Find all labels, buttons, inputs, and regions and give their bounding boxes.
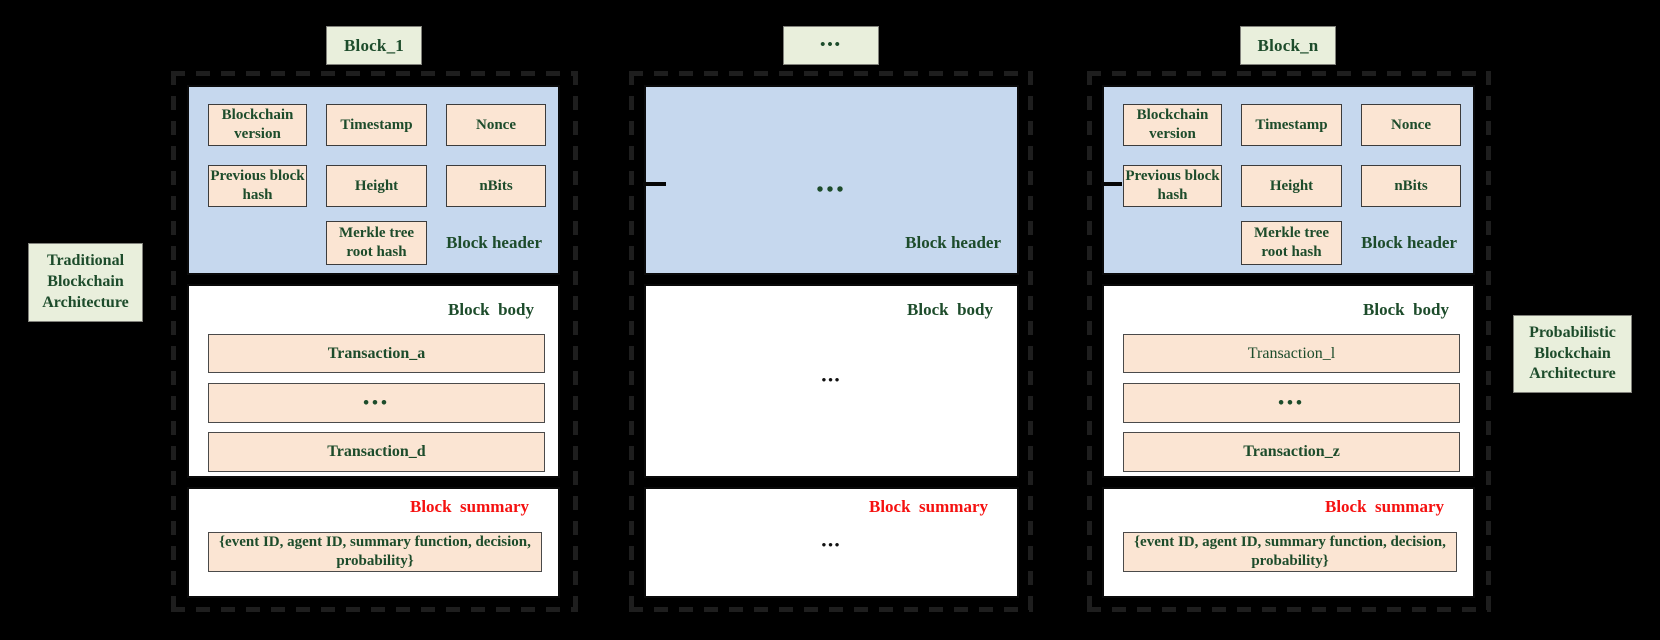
field-merkle-tree-root-hash: Merkle tree root hash (326, 221, 427, 265)
block-ellipsis-body: Block body ••• (644, 284, 1019, 478)
transaction-box: Transaction_z (1123, 432, 1460, 472)
field-timestamp: Timestamp (1241, 104, 1342, 146)
block-n-header: Blockchain version Timestamp Nonce Previ… (1102, 85, 1475, 275)
field-nbits: nBits (446, 165, 546, 207)
block-1-body: Block body Transaction_a ••• Transaction… (187, 284, 560, 478)
block-body-label: Block body (907, 300, 993, 320)
field-merkle-tree-root-hash: Merkle tree root hash (1241, 221, 1342, 265)
block-1-summary: Block summary {event ID, agent ID, summa… (187, 487, 560, 598)
field-nonce: Nonce (1361, 104, 1461, 146)
transactions-ellipsis-box: ••• (208, 383, 545, 423)
field-nbits: nBits (1361, 165, 1461, 207)
block-header-label: Block header (1361, 233, 1457, 253)
transactions-ellipsis-box: ••• (1123, 383, 1460, 423)
block-ellipsis: ••• Block header Block body ••• Block su… (629, 71, 1033, 612)
dashed-border-right (1028, 71, 1033, 612)
diagram-canvas: Block_1 ••• Block_n Traditional Blockcha… (0, 0, 1660, 640)
field-height: Height (326, 165, 427, 207)
field-nonce: Nonce (446, 104, 546, 146)
probabilistic-architecture-label: Probabilistic Blockchain Architecture (1513, 315, 1632, 393)
field-blockchain-version: Blockchain version (1123, 104, 1222, 146)
dashed-border-bottom (629, 607, 1033, 612)
field-previous-block-hash: Previous block hash (208, 165, 307, 207)
transaction-box: Transaction_l (1123, 334, 1460, 373)
dashed-border-top (629, 71, 1033, 76)
inter-block-link-line (643, 182, 666, 186)
dashed-border-bottom (171, 607, 578, 612)
inter-block-link-line (1101, 182, 1122, 186)
block-1-tab: Block_1 (326, 26, 422, 65)
block-header-label: Block header (446, 233, 542, 253)
block-1: Blockchain version Timestamp Nonce Previ… (171, 71, 578, 612)
block-n-tab: Block_n (1240, 26, 1336, 65)
block-summary-label: Block summary (869, 497, 988, 517)
field-previous-block-hash: Previous block hash (1123, 165, 1222, 207)
transaction-box: Transaction_a (208, 334, 545, 373)
body-ellipsis: ••• (646, 372, 1017, 388)
dashed-border-left (629, 71, 634, 612)
transaction-box: Transaction_d (208, 432, 545, 472)
block-summary-label: Block summary (1325, 497, 1444, 517)
block-1-header: Blockchain version Timestamp Nonce Previ… (187, 85, 560, 275)
block-body-label: Block body (448, 300, 534, 320)
block-body-label: Block body (1363, 300, 1449, 320)
field-timestamp: Timestamp (326, 104, 427, 146)
dashed-border-right (1486, 71, 1491, 612)
block-ellipsis-tab: ••• (783, 26, 879, 65)
block-header-label: Block header (905, 233, 1001, 253)
dashed-border-right (573, 71, 578, 612)
block-n-body: Block body Transaction_l ••• Transaction… (1102, 284, 1475, 478)
block-summary-label: Block summary (410, 497, 529, 517)
block-n: Blockchain version Timestamp Nonce Previ… (1087, 71, 1491, 612)
block-n-summary: Block summary {event ID, agent ID, summa… (1102, 487, 1475, 598)
summary-ellipsis: ••• (646, 537, 1017, 553)
dashed-border-top (1087, 71, 1491, 76)
summary-content-box: {event ID, agent ID, summary function, d… (1123, 532, 1457, 572)
dashed-border-left (171, 71, 176, 612)
dashed-border-left (1087, 71, 1092, 612)
block-ellipsis-summary: Block summary ••• (644, 487, 1019, 598)
dashed-border-bottom (1087, 607, 1491, 612)
field-blockchain-version: Blockchain version (208, 104, 307, 146)
traditional-architecture-label: Traditional Blockchain Architecture (28, 243, 143, 322)
header-ellipsis: ••• (646, 179, 1017, 202)
field-height: Height (1241, 165, 1342, 207)
summary-content-box: {event ID, agent ID, summary function, d… (208, 532, 542, 572)
dashed-border-top (171, 71, 578, 76)
block-ellipsis-header: ••• Block header (644, 85, 1019, 275)
